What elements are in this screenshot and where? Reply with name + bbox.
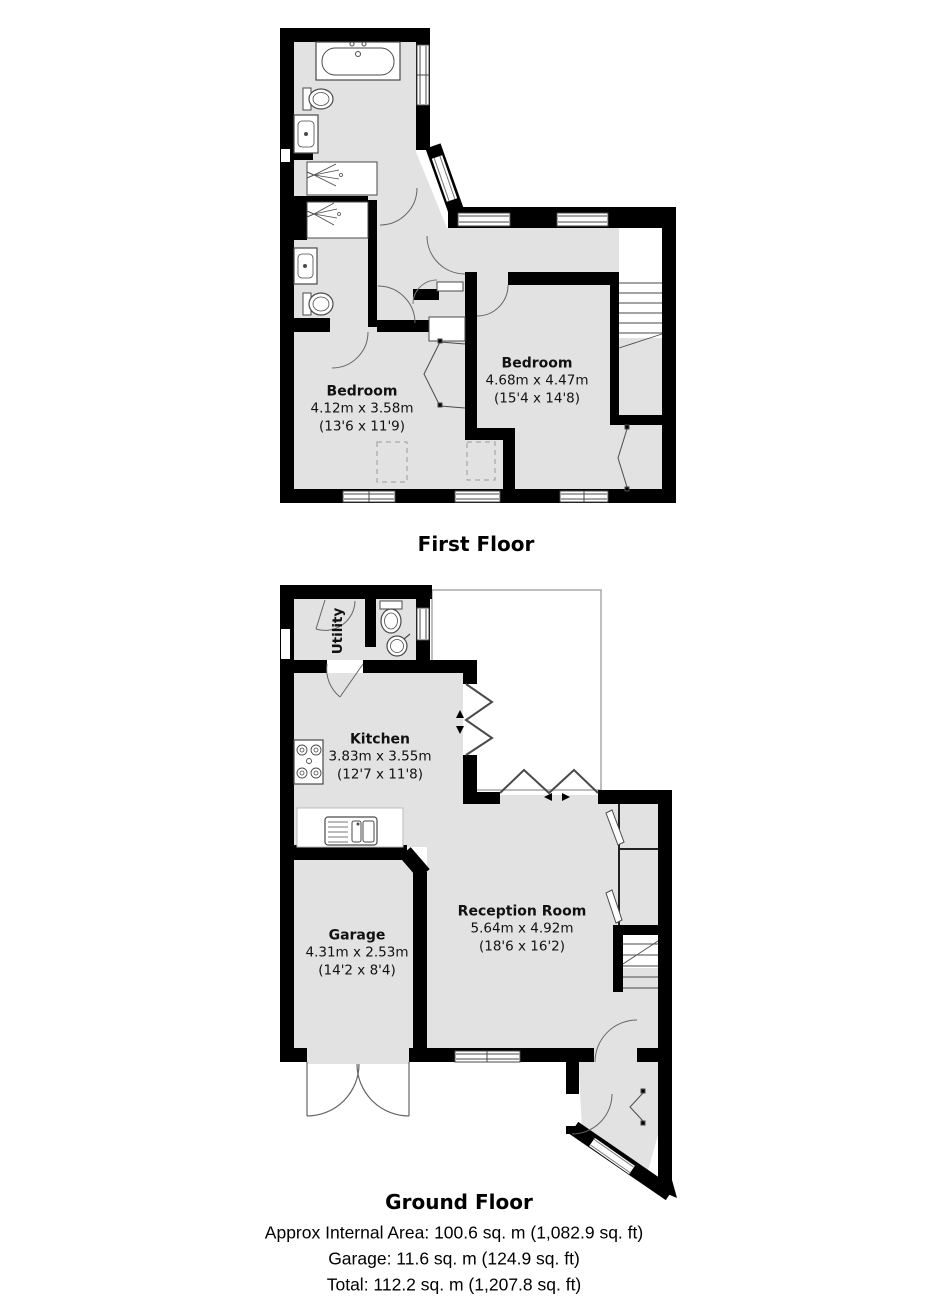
room-dim-metric: 5.64m x 4.92m bbox=[458, 921, 587, 939]
room-name: Garage bbox=[306, 926, 409, 944]
room-name: Kitchen bbox=[329, 730, 432, 748]
first-floor-title: First Floor bbox=[418, 532, 535, 556]
room-label-kitchen: Kitchen 3.83m x 3.55m (12'7 x 11'8) bbox=[329, 730, 432, 783]
room-label-bedroom-left: Bedroom 4.12m x 3.58m (13'6 x 11'9) bbox=[311, 382, 414, 435]
toilet-icon bbox=[303, 88, 333, 110]
room-dim-imperial: (18'6 x 16'2) bbox=[458, 938, 587, 956]
room-dim-metric: 4.31m x 2.53m bbox=[306, 945, 409, 963]
room-dim-metric: 4.68m x 4.47m bbox=[486, 373, 589, 391]
stove-icon bbox=[294, 740, 323, 784]
room-label-utility: Utility bbox=[330, 608, 346, 655]
room-label-bedroom-right: Bedroom 4.68m x 4.47m (15'4 x 14'8) bbox=[486, 354, 589, 407]
summary-garage-area: Garage: 11.6 sq. m (124.9 sq. ft) bbox=[328, 1249, 580, 1270]
room-label-reception: Reception Room 5.64m x 4.92m (18'6 x 16'… bbox=[458, 902, 587, 955]
sink-icon bbox=[294, 248, 317, 284]
room-label-garage: Garage 4.31m x 2.53m (14'2 x 8'4) bbox=[306, 926, 409, 979]
shower-icon bbox=[307, 202, 368, 238]
room-dim-imperial: (12'7 x 11'8) bbox=[329, 766, 432, 784]
room-dim-metric: 3.83m x 3.55m bbox=[329, 749, 432, 767]
summary-total-area: Total: 112.2 sq. m (1,207.8 sq. ft) bbox=[327, 1275, 582, 1296]
room-dim-metric: 4.12m x 3.58m bbox=[311, 401, 414, 419]
room-dim-imperial: (15'4 x 14'8) bbox=[486, 390, 589, 408]
kitchen-sink-icon bbox=[297, 808, 403, 847]
room-dim-imperial: (13'6 x 11'9) bbox=[311, 418, 414, 436]
floorplan-graphics bbox=[0, 0, 940, 1304]
toilet-icon bbox=[303, 293, 333, 315]
garage-door-icon bbox=[307, 1062, 409, 1116]
toilet-icon bbox=[380, 601, 402, 633]
room-name: Bedroom bbox=[311, 382, 414, 400]
bathtub-icon bbox=[316, 42, 400, 80]
ground-floor-plan bbox=[280, 585, 677, 1198]
shower-icon bbox=[307, 162, 377, 195]
room-dim-imperial: (14'2 x 8'4) bbox=[306, 962, 409, 980]
sink-icon bbox=[294, 115, 318, 153]
ground-floor-title: Ground Floor bbox=[385, 1190, 533, 1214]
floorplan-document: Bedroom 4.12m x 3.58m (13'6 x 11'9) Bedr… bbox=[0, 0, 940, 1304]
summary-internal-area: Approx Internal Area: 100.6 sq. m (1,082… bbox=[265, 1223, 643, 1244]
room-name: Bedroom bbox=[486, 354, 589, 372]
room-name: Reception Room bbox=[458, 902, 587, 920]
stairs-icon bbox=[619, 228, 662, 348]
